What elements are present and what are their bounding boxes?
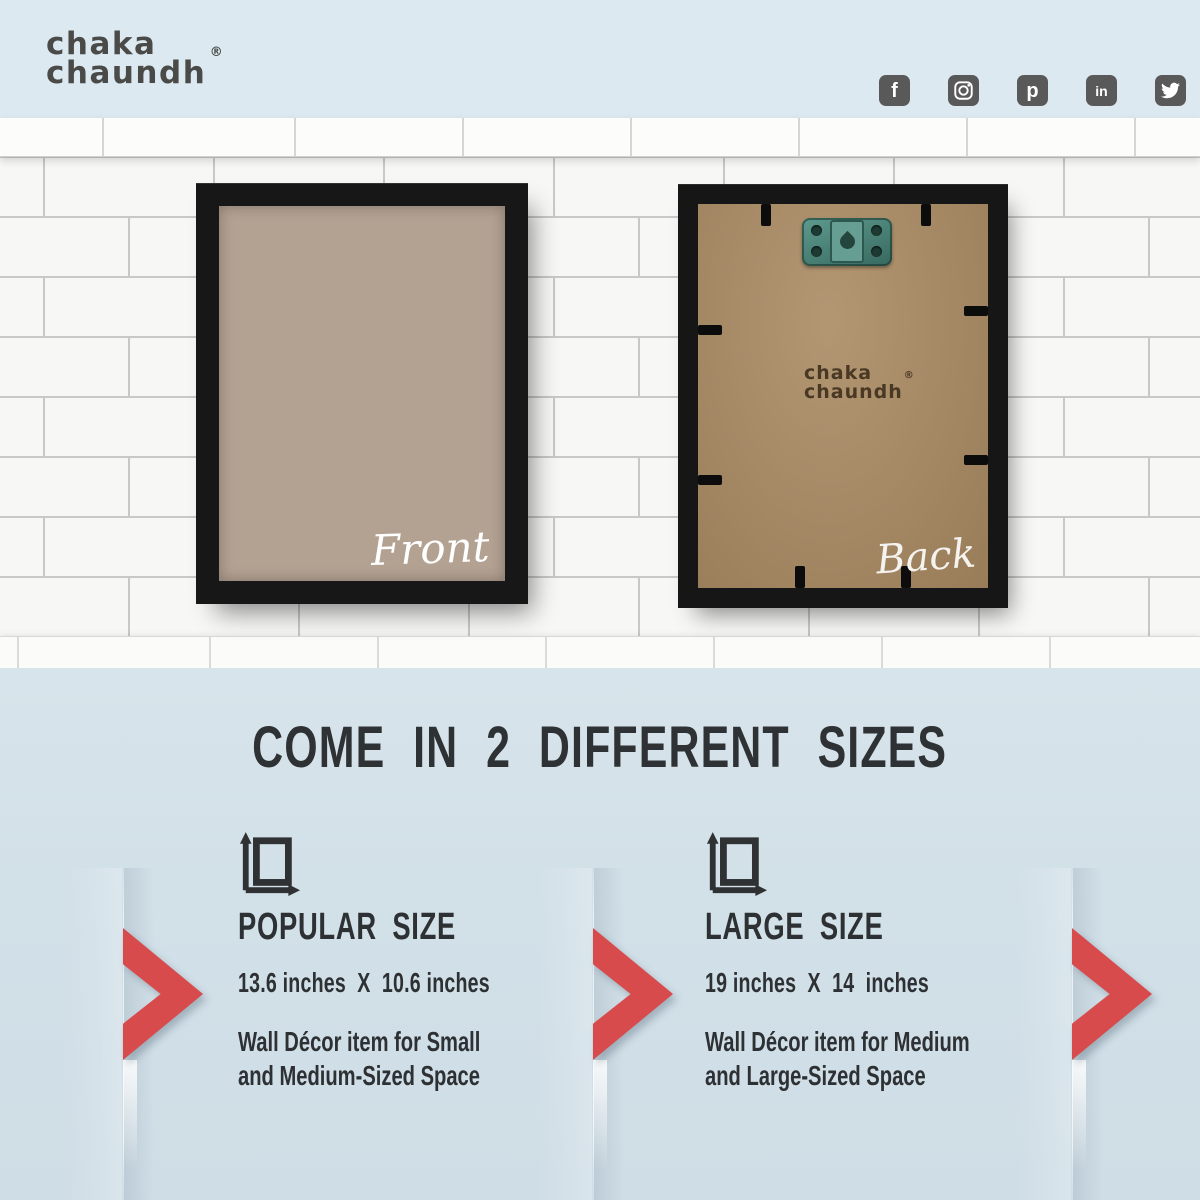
wall-ledge-top xyxy=(0,118,1200,157)
retainer-clip xyxy=(921,204,931,226)
wall-ledge-bottom xyxy=(0,636,1200,669)
dimensions-icon xyxy=(705,830,767,900)
brick-wall: Front xyxy=(0,118,1200,668)
hanger-screw-hole xyxy=(811,246,822,257)
hanger-screw-hole xyxy=(871,225,882,236)
registered-trademark-symbol: ® xyxy=(904,370,915,381)
retainer-clip xyxy=(698,325,722,335)
linkedin-icon: in xyxy=(1095,84,1107,98)
frame-back-board: chaka chaundh ® Back xyxy=(698,204,988,588)
retainer-clip xyxy=(761,204,771,226)
sizes-heading: COME IN 2 DIFFERENT SIZES xyxy=(0,714,1200,781)
retainer-clip xyxy=(698,475,722,485)
registered-trademark-symbol: ® xyxy=(210,45,225,60)
social-links-row: f p in xyxy=(879,75,1186,106)
social-link-facebook[interactable]: f xyxy=(879,75,910,106)
frame-back-view: chaka chaundh ® Back xyxy=(678,184,1008,608)
brand-stamp: chaka chaundh ® xyxy=(804,364,903,402)
hanger-keyhole-plate xyxy=(830,220,864,263)
sizes-section: COME IN 2 DIFFERENT SIZES xyxy=(0,668,1200,1200)
social-link-pinterest[interactable]: p xyxy=(1017,75,1048,106)
red-chevron-arrow xyxy=(123,928,203,1060)
hanger-screw-hole xyxy=(871,246,882,257)
dimensions-icon xyxy=(238,830,300,900)
header-band: chaka chaundh ® f p in xyxy=(0,0,1200,118)
twitter-icon xyxy=(1161,81,1180,100)
pinterest-icon: p xyxy=(1026,81,1038,101)
social-link-linkedin[interactable]: in xyxy=(1086,75,1117,106)
retainer-clip xyxy=(795,566,805,588)
brand-stamp-line2: chaundh xyxy=(804,383,903,402)
size-option-large: LARGE SIZE 19 inches X 14 inches Wall Dé… xyxy=(705,830,1105,1092)
keyhole xyxy=(837,231,858,252)
size-dimensions: 19 inches X 14 inches xyxy=(705,967,985,999)
facebook-icon: f xyxy=(891,81,898,101)
size-description: Wall Décor item for Small and Medium-Siz… xyxy=(238,1025,526,1092)
size-option-popular: POPULAR SIZE 13.6 inches X 10.6 inches W… xyxy=(238,830,638,1092)
size-description: Wall Décor item for Medium and Large-Siz… xyxy=(705,1025,993,1092)
brand-logo: chaka chaundh ® xyxy=(46,30,206,88)
back-label: Back xyxy=(875,531,978,584)
hanger-screw-hole xyxy=(811,225,822,236)
size-title: POPULAR SIZE xyxy=(238,906,526,949)
frame-front-mat: Front xyxy=(219,206,505,581)
page: chaka chaundh ® f p in xyxy=(0,0,1200,1200)
front-label: Front xyxy=(370,522,490,575)
retainer-clip xyxy=(964,306,988,316)
retainer-clip xyxy=(964,455,988,465)
social-link-instagram[interactable] xyxy=(948,75,979,106)
size-dimensions: 13.6 inches X 10.6 inches xyxy=(238,967,518,999)
instagram-icon xyxy=(953,80,974,101)
brand-logo-line2: chaundh xyxy=(46,59,206,88)
hanger-plate xyxy=(802,218,892,266)
frame-front-view: Front xyxy=(196,183,528,604)
social-link-twitter[interactable] xyxy=(1155,75,1186,106)
size-title: LARGE SIZE xyxy=(705,906,993,949)
